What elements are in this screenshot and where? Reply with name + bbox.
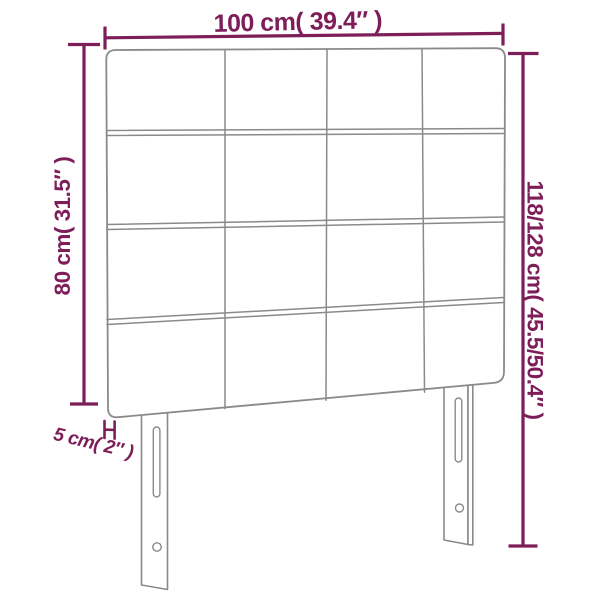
dimension-width: 100 cm( 39.4″ ) [105,6,503,49]
total-height-label: 118/128 cm( 45.5/50.4″ ) [523,181,548,420]
right-leg-hole [456,504,464,512]
depth-label: 5 cm( 2″ ) [51,424,135,463]
dimension-panel-height: 80 cm( 31.5″ ) [50,45,100,405]
panel-height-label: 80 cm( 31.5″ ) [50,157,75,296]
diagram-stage: 100 cm( 39.4″ ) 80 cm( 31.5″ ) 118/128 c… [0,0,600,600]
right-leg-side-face [468,382,473,545]
headboard-dimension-diagram: 100 cm( 39.4″ ) 80 cm( 31.5″ ) 118/128 c… [0,0,600,600]
left-leg-hole [153,543,161,551]
dimension-depth: 5 cm( 2″ ) [51,421,135,463]
dimension-total-height: 118/128 cm( 45.5/50.4″ ) [508,54,548,547]
headboard-legs [142,382,473,590]
left-leg-slot [153,427,160,497]
right-leg-slot [455,398,462,462]
width-label: 100 cm( 39.4″ ) [213,6,382,38]
panel-outline [106,48,505,417]
headboard [106,48,505,589]
